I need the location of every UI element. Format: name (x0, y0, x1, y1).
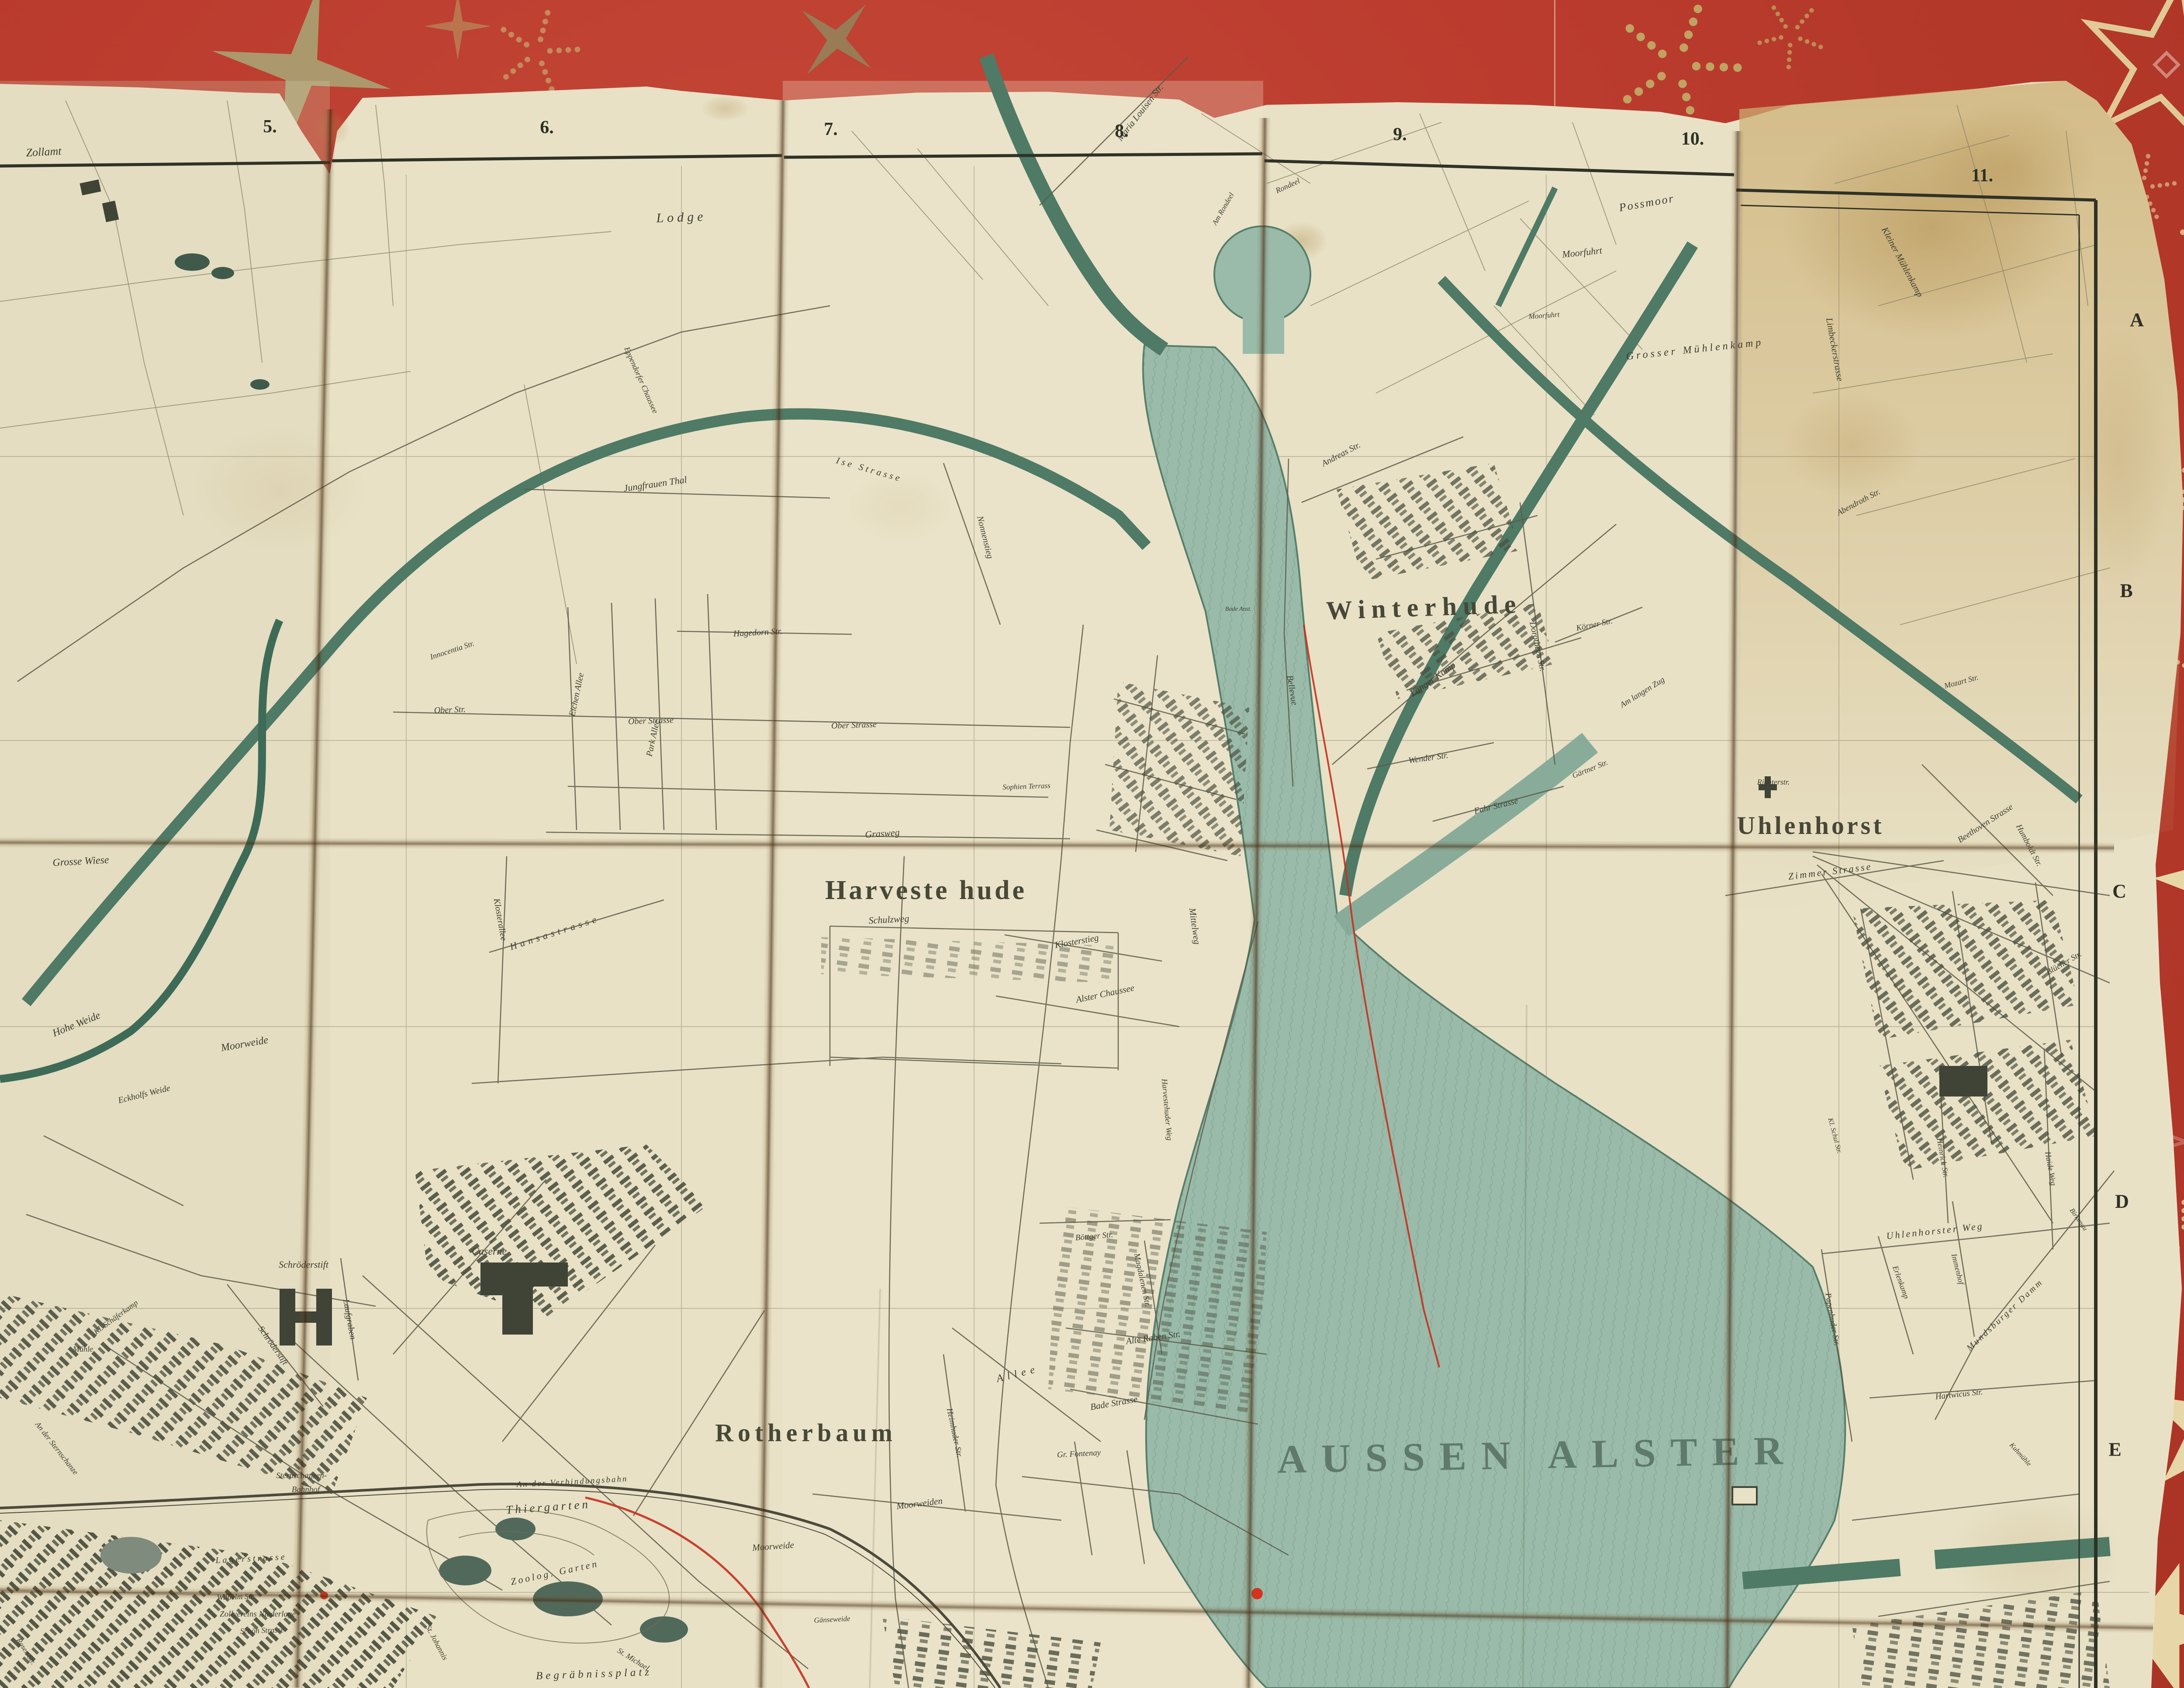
fold-layer (0, 0, 2184, 1688)
antique-map-photo: ZollamtLodgeMaria Louisen Str.RondeelAm … (0, 0, 2184, 1688)
fold-line-vertical (290, 109, 336, 1688)
paper-crease (1522, 1005, 1528, 1688)
fold-line-vertical (1241, 118, 1271, 1688)
fold-line-vertical (1720, 131, 1744, 1688)
fold-line-vertical (754, 100, 789, 1688)
fold-line-horizontal (0, 1584, 2153, 1633)
paper-crease (868, 1289, 881, 1688)
